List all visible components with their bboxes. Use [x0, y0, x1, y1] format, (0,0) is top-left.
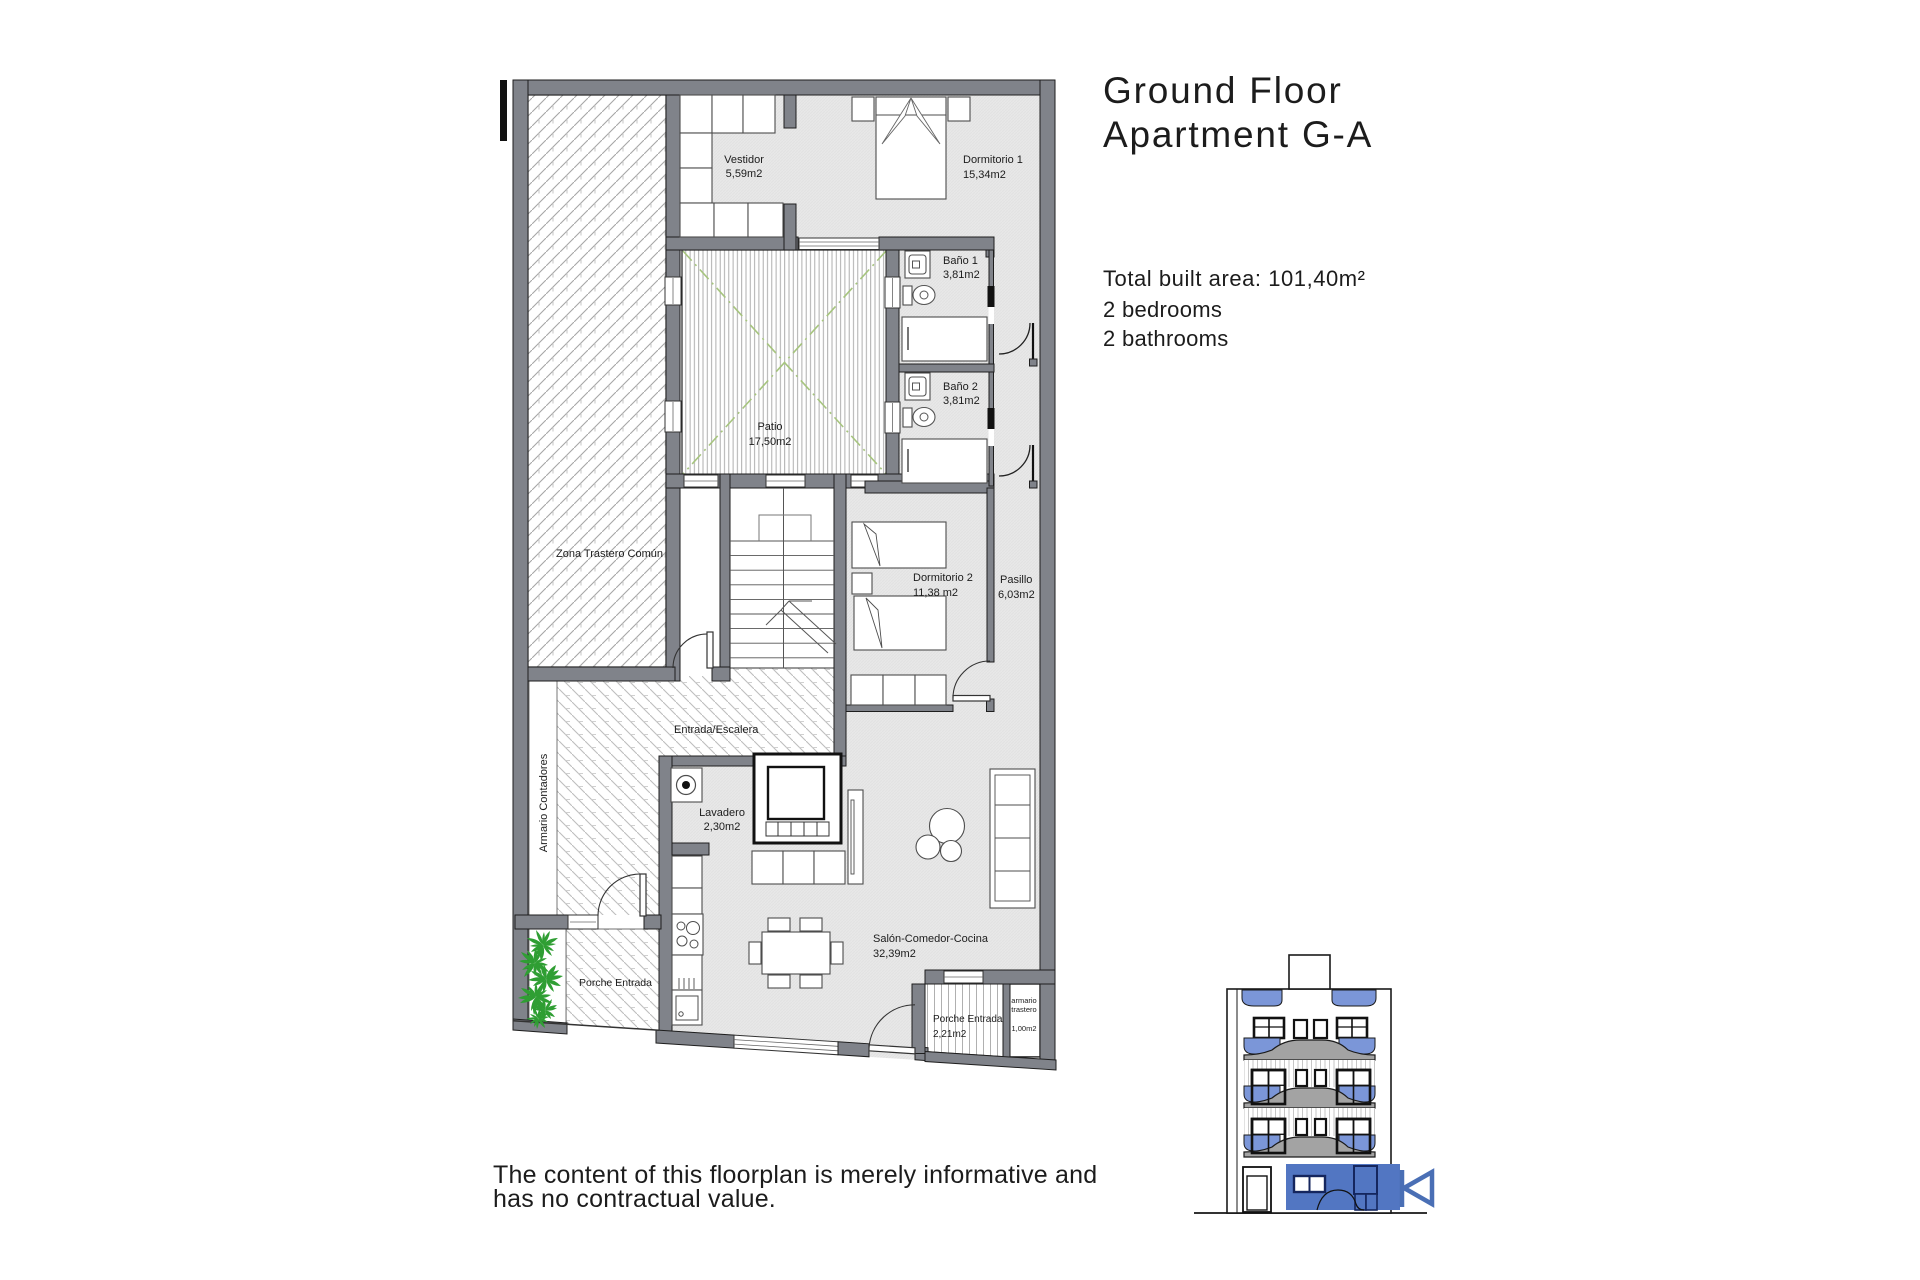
svg-text:32,39m2: 32,39m2 [873, 948, 916, 960]
svg-text:Porche Entrada: Porche Entrada [933, 1014, 1003, 1025]
svg-text:Ground Floor: Ground Floor [1103, 70, 1343, 111]
svg-text:Total built area: 101,40m²: Total built area: 101,40m² [1103, 266, 1366, 291]
svg-text:2 bedrooms: 2 bedrooms [1103, 297, 1222, 322]
svg-text:1,00m2: 1,00m2 [1011, 1024, 1036, 1033]
svg-text:armario: armario [1011, 996, 1036, 1005]
svg-text:15,34m2: 15,34m2 [963, 169, 1006, 181]
svg-text:Lavadero: Lavadero [699, 807, 745, 819]
svg-text:Baño 2: Baño 2 [943, 381, 978, 393]
svg-text:Dormitorio 1: Dormitorio 1 [963, 154, 1023, 166]
svg-text:6,03m2: 6,03m2 [998, 589, 1035, 601]
svg-text:Armario Contadores: Armario Contadores [538, 753, 550, 852]
svg-text:Entrada/Escalera: Entrada/Escalera [674, 724, 759, 736]
svg-text:3,81m2: 3,81m2 [943, 395, 980, 407]
svg-text:Vestidor: Vestidor [724, 154, 764, 166]
svg-text:Apartment G-A: Apartment G-A [1103, 114, 1373, 155]
svg-text:has no contractual value.: has no contractual value. [493, 1185, 776, 1213]
svg-text:3,81m2: 3,81m2 [943, 269, 980, 281]
svg-text:2,21m2: 2,21m2 [933, 1029, 967, 1040]
svg-text:Baño 1: Baño 1 [943, 255, 978, 267]
svg-text:5,59m2: 5,59m2 [726, 168, 763, 180]
svg-text:2,30m2: 2,30m2 [704, 821, 741, 833]
svg-text:11,38 m2: 11,38 m2 [913, 587, 958, 599]
svg-text:Porche Entrada: Porche Entrada [579, 977, 652, 989]
svg-text:2 bathrooms: 2 bathrooms [1103, 326, 1229, 351]
svg-text:trastero: trastero [1011, 1005, 1036, 1014]
svg-text:Dormitorio 2: Dormitorio 2 [913, 572, 973, 584]
svg-text:Pasillo: Pasillo [1000, 574, 1032, 586]
svg-text:Salón-Comedor-Cocina: Salón-Comedor-Cocina [873, 933, 989, 945]
svg-text:Zona Trastero Común: Zona Trastero Común [556, 548, 663, 560]
svg-text:17,50m2: 17,50m2 [749, 436, 792, 448]
svg-text:Patio: Patio [757, 421, 782, 433]
